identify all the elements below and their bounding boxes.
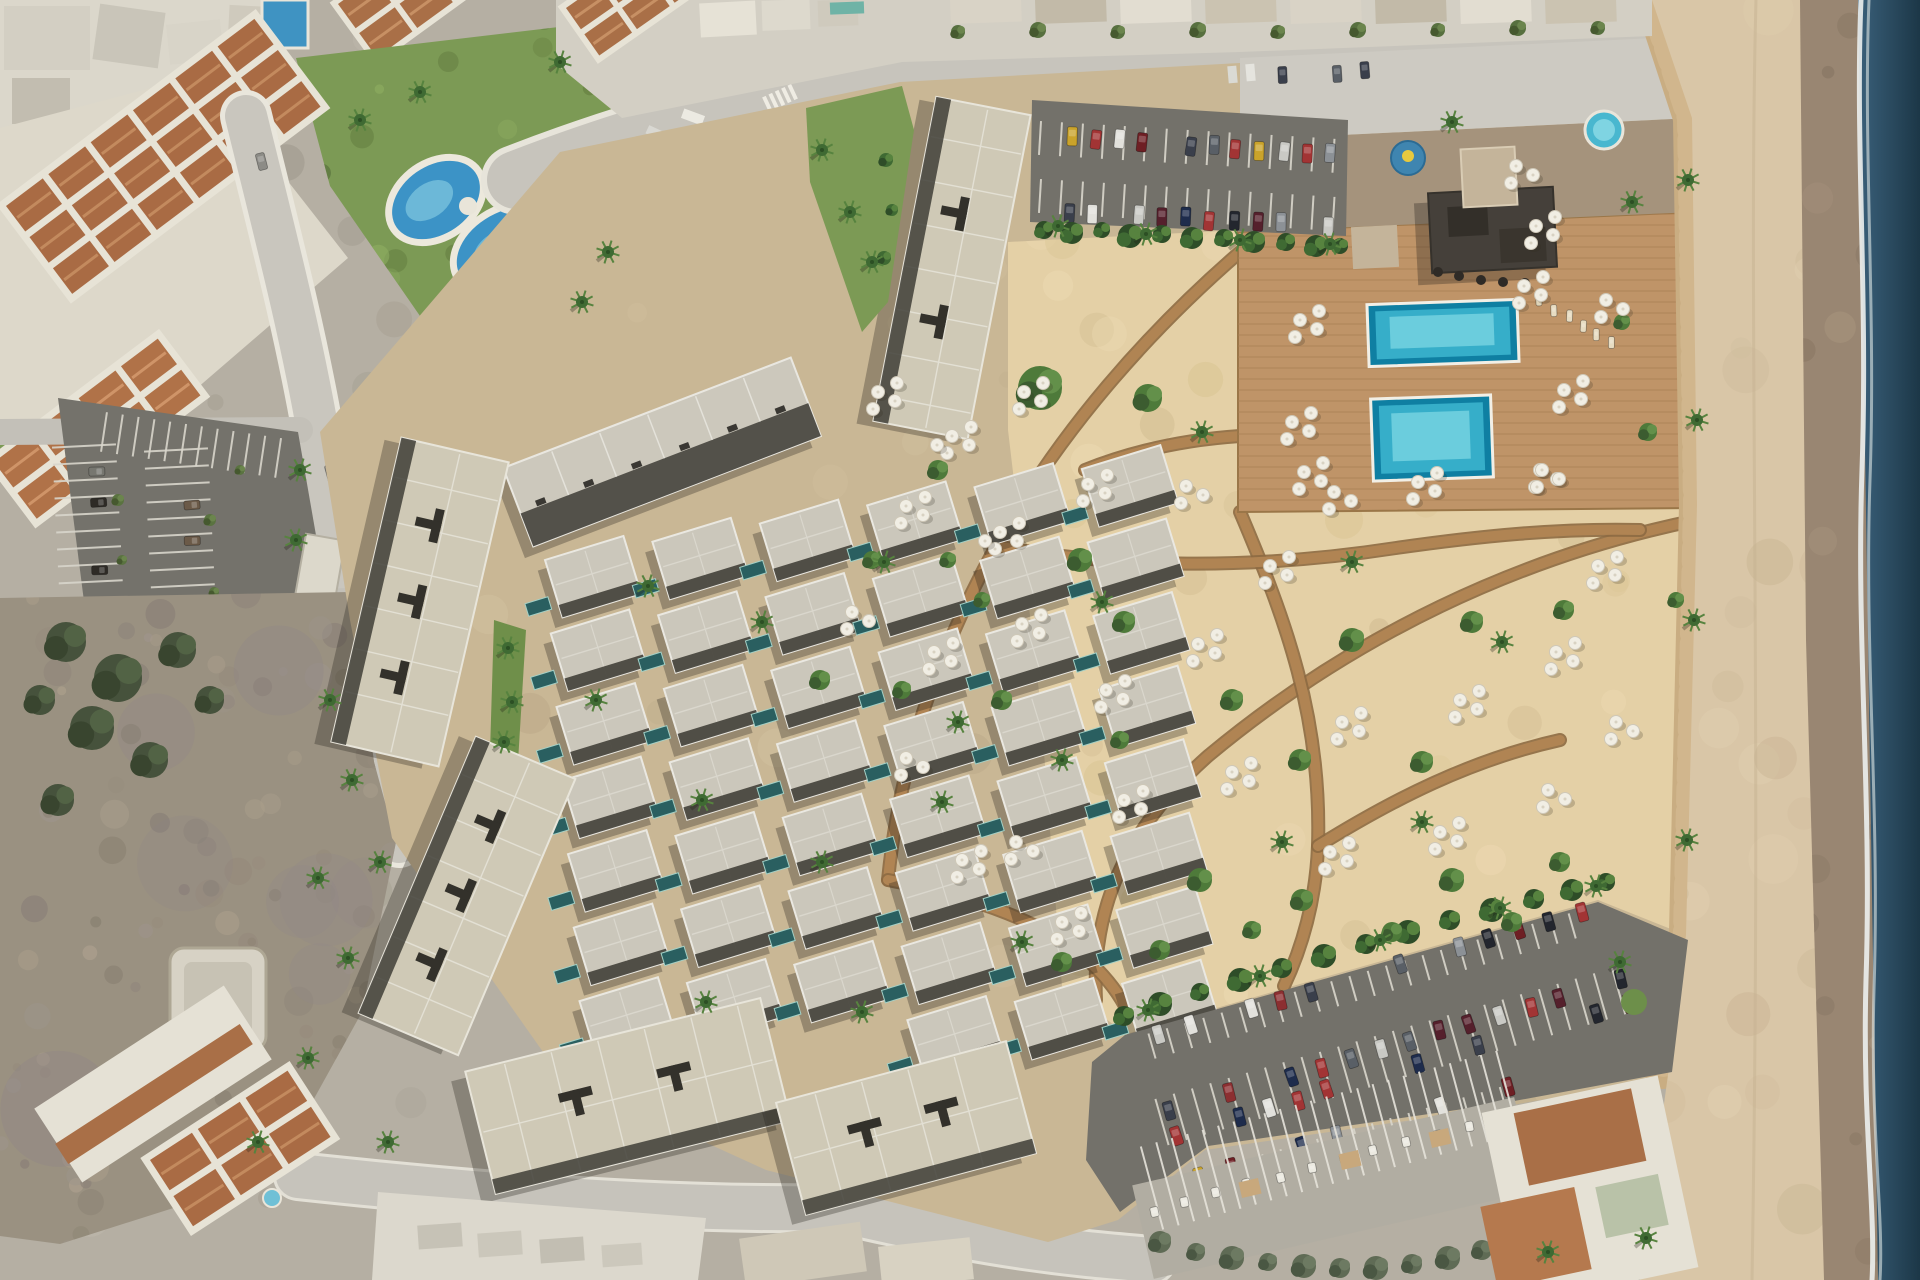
screenshot-root — [0, 0, 1920, 1280]
aerial-satellite-view — [0, 0, 1920, 1280]
rooftop-unit — [539, 1236, 585, 1263]
parking-grass-island — [1621, 989, 1647, 1015]
rooftop-unit — [477, 1230, 523, 1257]
club-canopy — [1351, 225, 1399, 269]
main-pool-shallow — [1389, 313, 1494, 349]
courtyard-pool — [263, 1189, 281, 1207]
rooftop-unit — [601, 1243, 642, 1268]
pool-islet — [459, 197, 477, 215]
strip-building — [761, 0, 810, 31]
strip-building — [699, 1, 757, 38]
club-roof-detail — [1447, 205, 1489, 237]
kids-splash-toy — [1402, 150, 1414, 162]
car — [1245, 64, 1255, 82]
car — [1227, 66, 1237, 84]
nw-building — [92, 4, 165, 69]
round-plunge-pool-center — [1593, 119, 1615, 141]
strip-pool — [830, 1, 864, 14]
nw-building — [4, 6, 90, 70]
rooftop-unit — [417, 1222, 463, 1249]
second-pool-shallow — [1391, 411, 1471, 462]
